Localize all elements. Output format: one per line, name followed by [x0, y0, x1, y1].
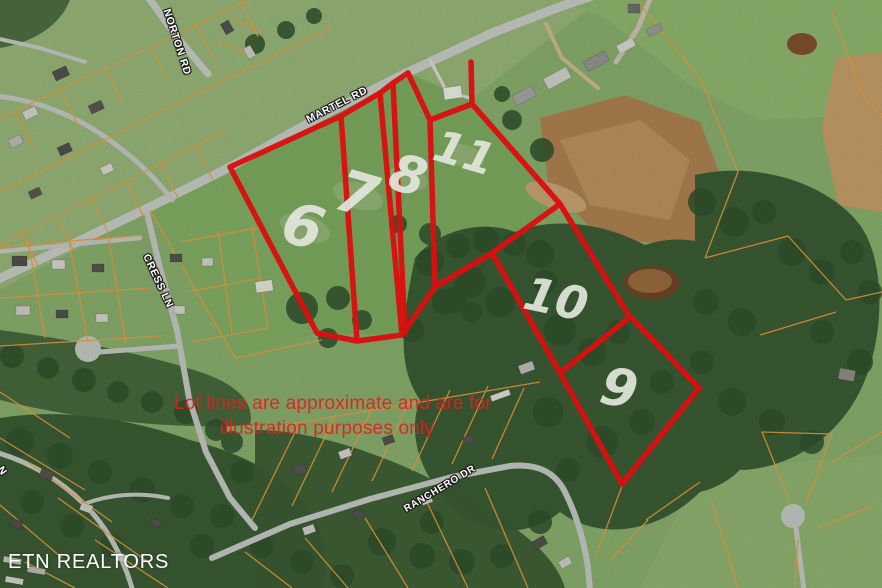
photo-grain	[0, 0, 882, 588]
aerial-listing-map: NORTON RD MARTEL RD CRESS LN RANCHERO DR…	[0, 0, 882, 588]
aerial-imagery	[0, 0, 882, 588]
